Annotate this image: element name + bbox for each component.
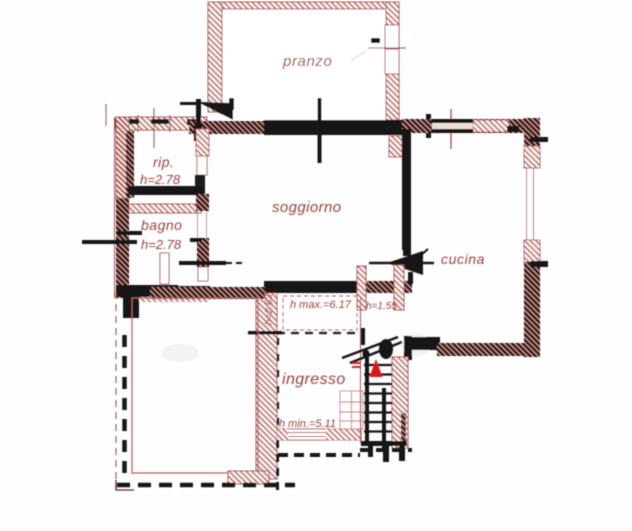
svg-text:rip.: rip. xyxy=(153,154,174,170)
svg-text:ingresso: ingresso xyxy=(282,371,346,388)
svg-text:bagno: bagno xyxy=(141,217,182,233)
svg-text:pranzo: pranzo xyxy=(282,53,332,70)
svg-text:h=2.78: h=2.78 xyxy=(140,172,181,187)
svg-text:cucina: cucina xyxy=(441,251,485,267)
svg-text:h max.=6.17: h max.=6.17 xyxy=(290,299,352,311)
svg-text:h min.=5.11: h min.=5.11 xyxy=(279,418,336,430)
svg-text:h=2.63: h=2.63 xyxy=(264,294,275,325)
svg-text:h=2.78: h=2.78 xyxy=(141,237,182,252)
svg-text:h=1.55: h=1.55 xyxy=(366,301,397,312)
svg-text:soggiorno: soggiorno xyxy=(272,199,341,216)
